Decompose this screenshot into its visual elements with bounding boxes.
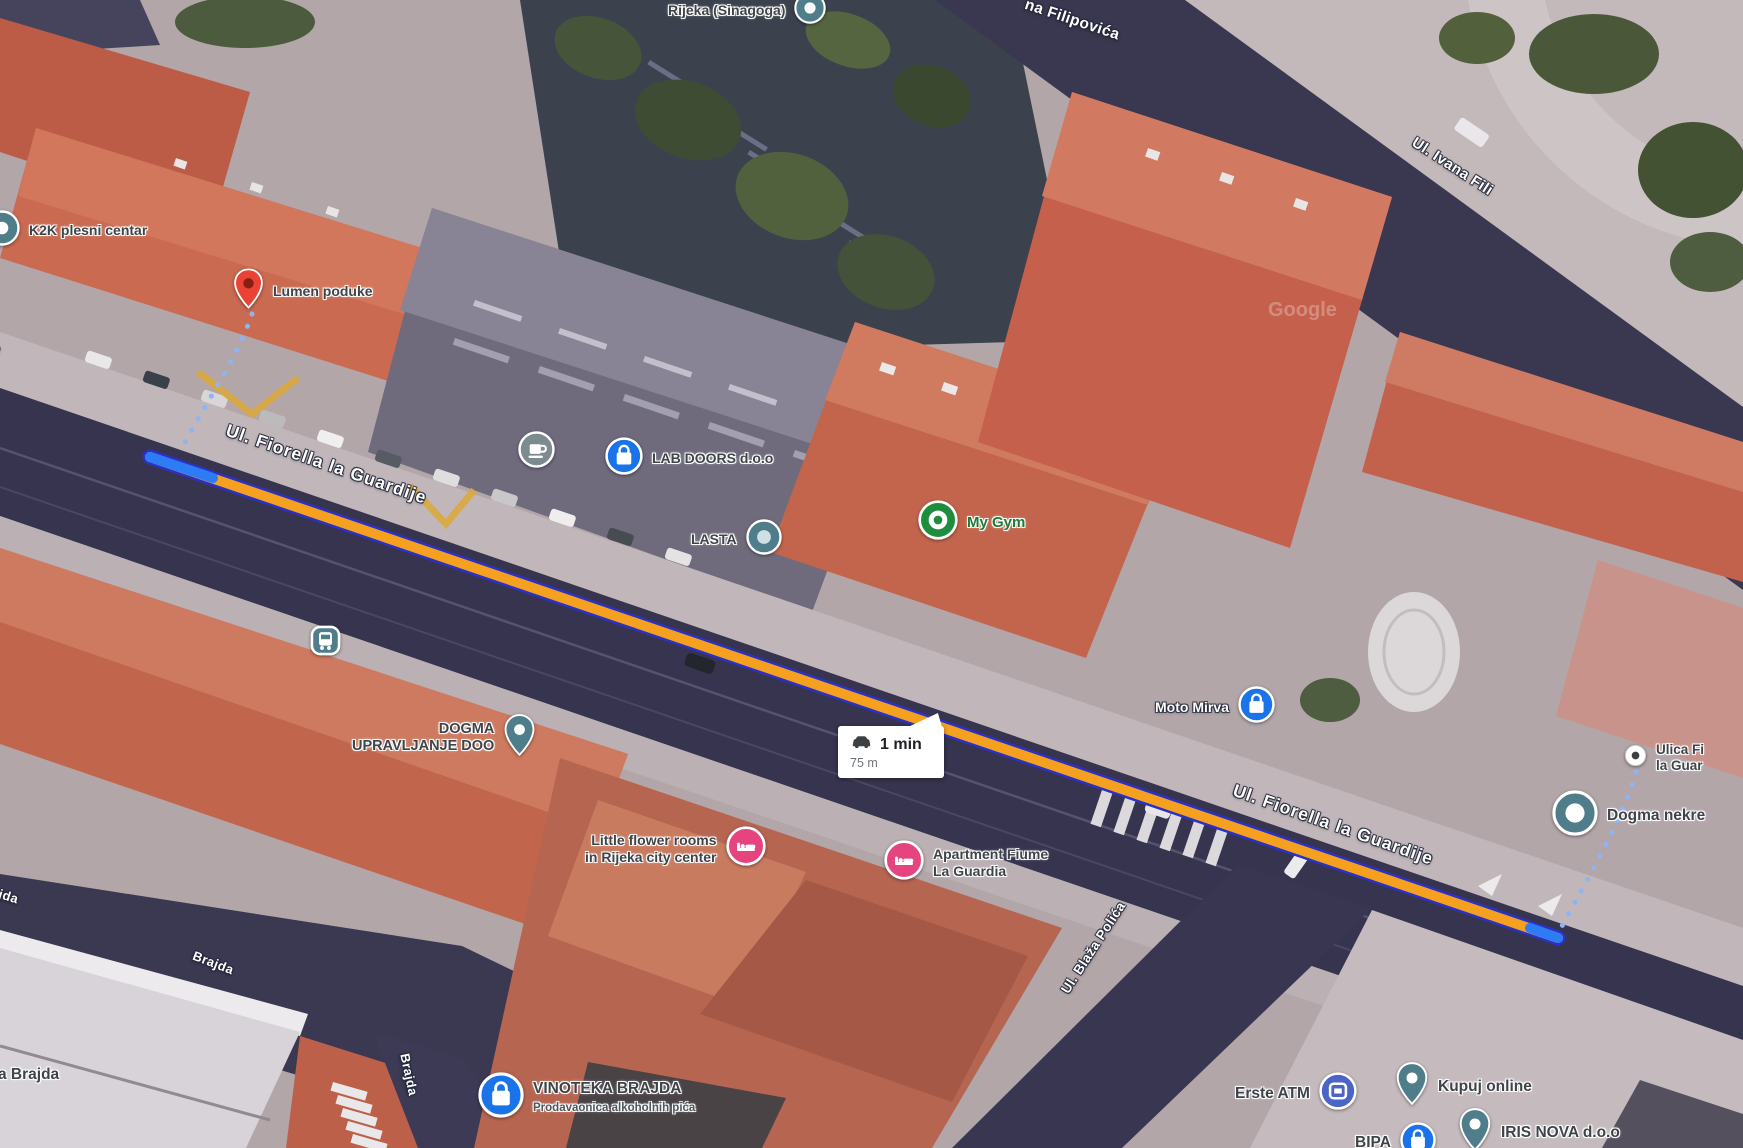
poi-bipa[interactable]: BIPA — [1355, 1122, 1436, 1148]
poi-label-line1: Ulica Fi — [1656, 742, 1704, 757]
poi-label[interactable]: VINOTEKA BRAJDAProdavaonica alkoholnih p… — [533, 1080, 695, 1115]
poi-lumen-poduke[interactable]: Lumen poduke — [233, 268, 373, 315]
poi-label[interactable]: a Brajda — [0, 1066, 59, 1084]
car-icon — [850, 735, 873, 754]
satellite-imagery: Google — [0, 0, 1743, 1148]
route-tooltip[interactable]: 1 min 75 m — [838, 726, 944, 778]
poi-label[interactable]: Dogma nekre — [1607, 807, 1705, 825]
poi-brajda-place[interactable]: a Brajda — [0, 1066, 59, 1084]
gym-place-icon[interactable] — [918, 500, 958, 545]
poi-dogma-upravljanje[interactable]: DOGMAUPRAVLJANJE DOO — [352, 714, 536, 762]
atm-icon[interactable] — [1319, 1072, 1357, 1115]
poi-label[interactable]: BIPA — [1355, 1134, 1391, 1148]
poi-label[interactable]: My Gym — [967, 514, 1025, 531]
poi-bus-stop[interactable] — [310, 625, 341, 661]
poi-lasta[interactable]: LASTA — [691, 519, 782, 560]
poi-lab-doors[interactable]: LAB DOORS d.o.o — [605, 437, 773, 480]
cafe-icon[interactable] — [518, 431, 555, 473]
poi-label[interactable]: LAB DOORS d.o.o — [652, 450, 773, 466]
lodging-icon[interactable] — [884, 840, 924, 885]
generic-place-icon[interactable] — [1552, 790, 1598, 841]
poi-rijeka-sinagoga[interactable]: Rijeka (Sinagoga) — [668, 0, 826, 29]
poi-label[interactable]: Kupuj online — [1438, 1078, 1532, 1096]
teal-pin-icon[interactable] — [503, 714, 536, 762]
google-watermark: Google — [1268, 299, 1337, 321]
poi-vinoteka-brajda[interactable]: VINOTEKA BRAJDAProdavaonica alkoholnih p… — [478, 1072, 695, 1123]
lodging-icon[interactable] — [726, 826, 766, 871]
poi-little-flower-rooms[interactable]: Little flower roomsin Rijeka city center — [585, 826, 766, 871]
poi-kupuj-online[interactable]: Kupuj online — [1395, 1062, 1532, 1111]
poi-label[interactable]: DOGMAUPRAVLJANJE DOO — [352, 721, 494, 754]
poi-label[interactable]: Moto Mirva — [1155, 699, 1229, 715]
poi-dogma-nekretnine[interactable]: Dogma nekre — [1552, 790, 1705, 841]
red-pin-icon[interactable] — [233, 268, 264, 315]
teal-pin-icon[interactable] — [1395, 1062, 1429, 1111]
poi-moto-mirva[interactable]: Moto Mirva — [1155, 686, 1275, 728]
poi-label[interactable]: K2K plesni centar — [29, 222, 147, 238]
poi-label[interactable]: Lumen poduke — [273, 283, 373, 299]
shopping-bag-icon[interactable] — [605, 437, 643, 480]
poi-cafe[interactable] — [518, 431, 555, 473]
poi-label-line2: La Guardia — [933, 863, 1006, 879]
small-dot-icon[interactable] — [1624, 744, 1647, 772]
poi-iris-nova[interactable]: IRIS NOVA d.o.o — [1458, 1108, 1620, 1148]
satellite-map[interactable]: Google Ul. Fiorella la Guardije Ul. Fior… — [0, 0, 1743, 1148]
poi-label-line1: Apartment Fiume — [933, 846, 1048, 862]
teal-pin-icon[interactable] — [1458, 1108, 1492, 1148]
poi-k2k-plesni-centar[interactable]: K2K plesni centar — [0, 210, 147, 251]
poi-label-subtitle: Prodavaonica alkoholnih pića — [533, 1102, 695, 1114]
poi-label-line1: Little flower rooms — [591, 832, 716, 848]
poi-label[interactable]: Little flower roomsin Rijeka city center — [585, 832, 717, 864]
shopping-bag-icon[interactable] — [1400, 1122, 1436, 1148]
route-distance: 75 m — [850, 756, 932, 770]
poi-my-gym[interactable]: My Gym — [918, 500, 1025, 545]
poi-label-line2: la Guar — [1656, 758, 1703, 773]
poi-label[interactable]: Ulica Fila Guar — [1656, 742, 1704, 773]
poi-label-line2: UPRAVLJANJE DOO — [352, 738, 494, 754]
shopping-bag-icon[interactable] — [1238, 686, 1275, 728]
bus-icon[interactable] — [310, 625, 341, 661]
generic-place-icon[interactable] — [0, 210, 20, 251]
generic-place-icon[interactable] — [794, 0, 826, 29]
poi-label-line1: DOGMA — [439, 721, 495, 737]
poi-label[interactable]: Apartment FiumeLa Guardia — [933, 846, 1048, 878]
shopping-bag-icon[interactable] — [478, 1072, 524, 1123]
poi-apartment-fiume[interactable]: Apartment FiumeLa Guardia — [884, 840, 1048, 885]
poi-label-title: VINOTEKA BRAJDA — [533, 1080, 681, 1097]
poi-label[interactable]: Rijeka (Sinagoga) — [668, 2, 785, 18]
poi-ulica-fiorella-place[interactable]: Ulica Fila Guar — [1624, 742, 1704, 773]
poi-label[interactable]: IRIS NOVA d.o.o — [1501, 1124, 1620, 1142]
route-duration: 1 min — [880, 736, 922, 754]
poi-label[interactable]: Erste ATM — [1235, 1085, 1310, 1103]
generic-place-icon[interactable] — [746, 519, 782, 560]
poi-erste-atm[interactable]: Erste ATM — [1235, 1072, 1357, 1115]
poi-label[interactable]: LASTA — [691, 531, 737, 547]
poi-label-line2: in Rijeka city center — [585, 849, 717, 865]
